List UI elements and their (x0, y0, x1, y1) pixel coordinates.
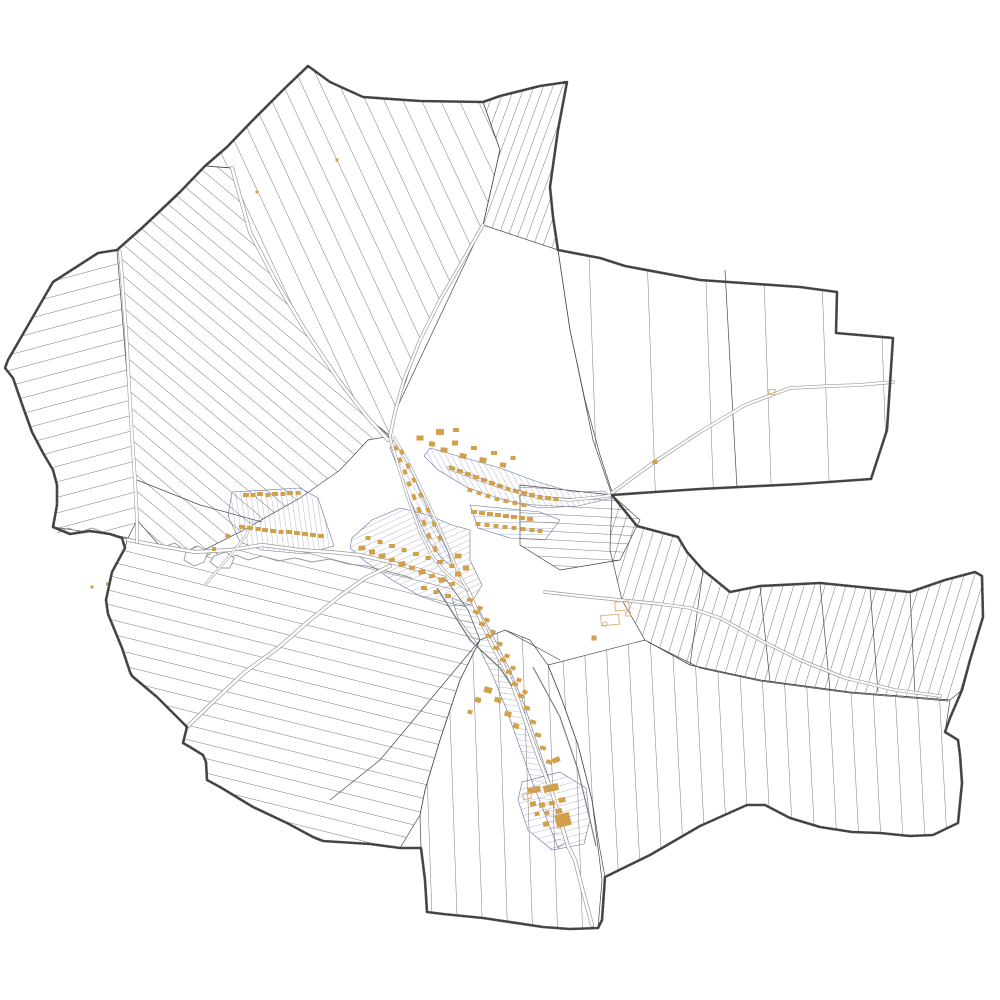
building (537, 529, 542, 533)
building (389, 544, 395, 548)
building (272, 492, 278, 496)
building (250, 493, 255, 497)
building (212, 547, 216, 551)
field-parcel-zones (5, 66, 983, 929)
building (495, 513, 501, 517)
building (91, 586, 94, 589)
building (653, 460, 658, 464)
building (471, 446, 477, 450)
building (445, 594, 451, 598)
building (452, 441, 458, 446)
building (511, 456, 516, 460)
building (434, 590, 439, 594)
building (500, 462, 507, 468)
building (479, 457, 487, 463)
building (491, 451, 497, 455)
building (436, 429, 444, 435)
building (520, 527, 525, 531)
building (257, 492, 263, 496)
village-zone-west-hamlet (228, 488, 334, 554)
building (553, 497, 558, 501)
building (378, 553, 386, 559)
building (366, 536, 371, 540)
building (475, 522, 480, 526)
building (502, 525, 507, 529)
building (471, 510, 477, 514)
building (265, 493, 270, 497)
building (493, 524, 498, 528)
light-building (601, 614, 620, 626)
building (239, 525, 245, 529)
cadastral-map-page (0, 0, 1000, 1000)
building (336, 159, 339, 162)
building (378, 540, 383, 544)
building (429, 441, 436, 447)
building (453, 428, 459, 432)
building (521, 503, 526, 507)
building (527, 517, 533, 521)
building (278, 530, 283, 534)
building (270, 529, 276, 533)
building (450, 564, 455, 568)
building (537, 495, 542, 499)
building (440, 447, 447, 453)
building (295, 491, 300, 495)
building (318, 534, 324, 538)
cadastral-map (0, 0, 1000, 1000)
building (310, 533, 316, 537)
building (503, 499, 509, 504)
building (389, 558, 395, 563)
building (503, 514, 509, 518)
field-zone-bay-lobe (558, 250, 893, 495)
building (302, 532, 308, 536)
building (286, 530, 292, 534)
building (413, 552, 419, 556)
building (511, 515, 517, 519)
building (519, 516, 525, 520)
building (426, 556, 431, 560)
building (529, 493, 535, 498)
building (255, 527, 260, 531)
building (247, 526, 253, 530)
building (417, 436, 424, 441)
building (402, 548, 407, 552)
building (479, 511, 485, 515)
building (294, 531, 300, 535)
building (484, 523, 489, 527)
building (421, 586, 427, 590)
building (511, 526, 516, 530)
building (455, 572, 461, 577)
building (256, 191, 259, 194)
building (487, 512, 493, 516)
field-zone-west-strip (5, 250, 137, 538)
building (369, 549, 375, 555)
building (529, 528, 534, 532)
building (592, 636, 597, 641)
building (545, 496, 551, 500)
building (243, 493, 249, 497)
building (358, 545, 365, 551)
building (463, 566, 469, 571)
building (280, 492, 285, 496)
building (512, 501, 518, 506)
building (262, 528, 268, 532)
building (287, 491, 293, 495)
building (437, 560, 443, 564)
building (455, 554, 462, 559)
